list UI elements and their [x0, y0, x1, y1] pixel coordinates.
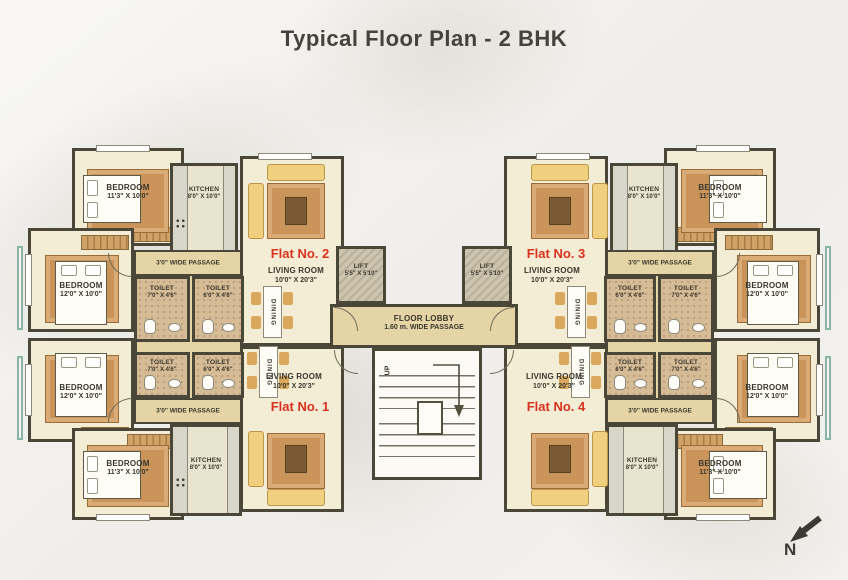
room-dimension: 8'0" X 10'0"	[609, 465, 675, 473]
window	[696, 145, 750, 152]
room-toilet-flat2-outer: TOILET7'0" X 4'6"	[134, 276, 190, 342]
passage-flat3: 3'0" WIDE PASSAGE	[606, 250, 714, 276]
sofa	[248, 431, 264, 487]
room-name: TOILET	[195, 359, 241, 367]
lift-right: LIFT5'5" X 5'10"	[462, 246, 512, 304]
room-dimension: 5'5" X 5'10"	[339, 271, 383, 279]
room-toilet-flat1-outer: TOILET7'0" X 4'6"	[134, 352, 190, 398]
passage-flat1: 3'0" WIDE PASSAGE	[134, 398, 242, 424]
staircase: UP	[372, 348, 482, 480]
passage-label: 3'0" WIDE PASSAGE	[608, 408, 712, 415]
room-name: TOILET	[137, 285, 187, 293]
window	[816, 364, 823, 416]
dining-chairs	[559, 352, 569, 365]
dining-table: DINING	[263, 286, 282, 338]
coffee-table	[549, 445, 571, 473]
north-indicator: N	[770, 512, 840, 572]
room-name: LIVING ROOM	[506, 266, 598, 276]
room-name: TOILET	[661, 359, 711, 367]
sofa	[267, 164, 325, 181]
window	[696, 514, 750, 521]
dining-area-flat2: DINING	[250, 284, 294, 340]
room-dimension: 8'0" X 10'0"	[613, 194, 675, 202]
room-name: TOILET	[661, 285, 711, 293]
dining-label: DINING	[574, 299, 580, 326]
room-name: KITCHEN	[173, 186, 235, 194]
stair-up-label: UP	[384, 366, 391, 376]
stair-direction-arrow-icon	[431, 357, 475, 427]
dining-area-flat3: DINING	[554, 284, 598, 340]
room-bedroom-flat1-side: BEDROOM12'0" X 10'0"	[28, 338, 134, 442]
lobby-name: FLOOR LOBBY	[333, 314, 515, 324]
floor-plan-page: BEDROOM11'3" X 10'0" BEDROOM12'0" X 10'0…	[0, 0, 848, 580]
room-name: TOILET	[607, 285, 653, 293]
room-dimension: 5'5" X 5'10"	[465, 271, 509, 279]
living-room-flat4-label: LIVING ROOM10'0" X 20'3"	[508, 372, 600, 391]
wardrobe	[81, 235, 129, 250]
stove-icon	[175, 477, 186, 488]
dining-chairs	[555, 292, 565, 305]
living-room-flat2-label: LIVING ROOM10'0" X 20'3"	[250, 266, 342, 285]
living-room-flat1-label: LIVING ROOM10'0" X 20'3"	[248, 372, 340, 391]
dining-label: DINING	[270, 299, 276, 326]
coffee-table	[549, 197, 571, 225]
sofa	[248, 183, 264, 239]
room-dimension: 7'0" X 4'6"	[137, 293, 187, 301]
room-dimension: 6'0" X 4'6"	[607, 367, 653, 375]
dining-chairs	[247, 352, 257, 365]
room-name: LIFT	[465, 263, 509, 271]
flat1-label: Flat No. 1	[255, 399, 345, 414]
room-dimension: 6'0" X 4'6"	[195, 293, 241, 301]
room-toilet-flat4-outer: TOILET7'0" X 4'6"	[658, 352, 714, 398]
passage-label: 3'0" WIDE PASSAGE	[136, 260, 240, 267]
room-name: LIVING ROOM	[508, 372, 600, 382]
sofa	[592, 431, 608, 487]
room-bedroom-flat2-side: BEDROOM12'0" X 10'0"	[28, 228, 134, 332]
north-label: N	[784, 540, 796, 560]
balcony-ledge	[17, 246, 23, 330]
window	[25, 254, 32, 306]
dining-chairs	[251, 292, 261, 305]
passage-flat2: 3'0" WIDE PASSAGE	[134, 250, 242, 276]
room-dimension: 10'0" X 20'3"	[508, 382, 600, 391]
room-name: TOILET	[195, 285, 241, 293]
room-name: LIVING ROOM	[250, 266, 342, 276]
sofa	[267, 489, 325, 506]
passage-label: 3'0" WIDE PASSAGE	[608, 260, 712, 267]
room-name: KITCHEN	[173, 457, 239, 465]
bed	[709, 175, 767, 223]
dining-table: DINING	[567, 286, 586, 338]
page-title: Typical Floor Plan - 2 BHK	[0, 26, 848, 52]
flat3-label: Flat No. 3	[511, 246, 601, 261]
room-bedroom-flat4-corner: BEDROOM11'3" X 10'0"	[664, 428, 776, 520]
room-name: KITCHEN	[613, 186, 675, 194]
room-dimension: 10'0" X 20'3"	[506, 276, 598, 285]
sofa	[592, 183, 608, 239]
window	[536, 153, 590, 160]
lobby-dimension: 1.60 m. WIDE PASSAGE	[333, 324, 515, 333]
balcony-ledge	[825, 356, 831, 440]
bed	[83, 175, 141, 223]
passage-label: 3'0" WIDE PASSAGE	[136, 408, 240, 415]
window	[816, 254, 823, 306]
room-dimension: 10'0" X 20'3"	[250, 276, 342, 285]
room-dimension: 8'0" X 10'0"	[173, 465, 239, 473]
room-toilet-flat2-inner: TOILET6'0" X 4'6"	[192, 276, 244, 342]
room-dimension: 7'0" X 4'6"	[661, 293, 711, 301]
coffee-table	[285, 197, 307, 225]
stove-icon	[662, 477, 673, 488]
coffee-table	[285, 445, 307, 473]
stove-icon	[175, 218, 186, 229]
balcony-ledge	[17, 356, 23, 440]
room-dimension: 7'0" X 4'6"	[137, 367, 187, 375]
room-name: LIFT	[339, 263, 383, 271]
window	[25, 364, 32, 416]
flat4-label: Flat No. 4	[511, 399, 601, 414]
wardrobe	[725, 235, 773, 250]
room-toilet-flat3-outer: TOILET7'0" X 4'6"	[658, 276, 714, 342]
bed	[55, 261, 107, 325]
living-room-flat3-label: LIVING ROOM10'0" X 20'3"	[506, 266, 598, 285]
bed	[55, 353, 107, 417]
room-name: TOILET	[137, 359, 187, 367]
sofa	[531, 164, 589, 181]
room-bedroom-flat4-side: BEDROOM12'0" X 10'0"	[714, 338, 820, 442]
room-name: KITCHEN	[609, 457, 675, 465]
room-name: LIVING ROOM	[248, 372, 340, 382]
room-kitchen-flat2: KITCHEN8'0" X 10'0"	[170, 163, 238, 255]
passage-flat4: 3'0" WIDE PASSAGE	[606, 398, 714, 424]
bed	[83, 451, 141, 499]
flat2-label: Flat No. 2	[255, 246, 345, 261]
room-bedroom-flat3-side: BEDROOM12'0" X 10'0"	[714, 228, 820, 332]
room-toilet-flat4-inner: TOILET6'0" X 4'6"	[604, 352, 656, 398]
sofa	[531, 489, 589, 506]
stove-icon	[662, 218, 673, 229]
window	[96, 514, 150, 521]
room-dimension: 7'0" X 4'6"	[661, 367, 711, 375]
room-kitchen-flat1: KITCHEN8'0" X 10'0"	[170, 424, 242, 516]
room-kitchen-flat4: KITCHEN8'0" X 10'0"	[606, 424, 678, 516]
room-toilet-flat3-inner: TOILET6'0" X 4'6"	[604, 276, 656, 342]
window	[258, 153, 312, 160]
bed	[747, 353, 799, 417]
room-name: TOILET	[607, 359, 653, 367]
room-dimension: 10'0" X 20'3"	[248, 382, 340, 391]
room-dimension: 6'0" X 4'6"	[607, 293, 653, 301]
bed	[709, 451, 767, 499]
room-bedroom-flat1-corner: BEDROOM11'3" X 10'0"	[72, 428, 184, 520]
balcony-ledge	[825, 246, 831, 330]
bed	[747, 261, 799, 325]
room-dimension: 6'0" X 4'6"	[195, 367, 241, 375]
room-dimension: 8'0" X 10'0"	[173, 194, 235, 202]
room-toilet-flat1-inner: TOILET6'0" X 4'6"	[192, 352, 244, 398]
window	[96, 145, 150, 152]
room-kitchen-flat3: KITCHEN8'0" X 10'0"	[610, 163, 678, 255]
